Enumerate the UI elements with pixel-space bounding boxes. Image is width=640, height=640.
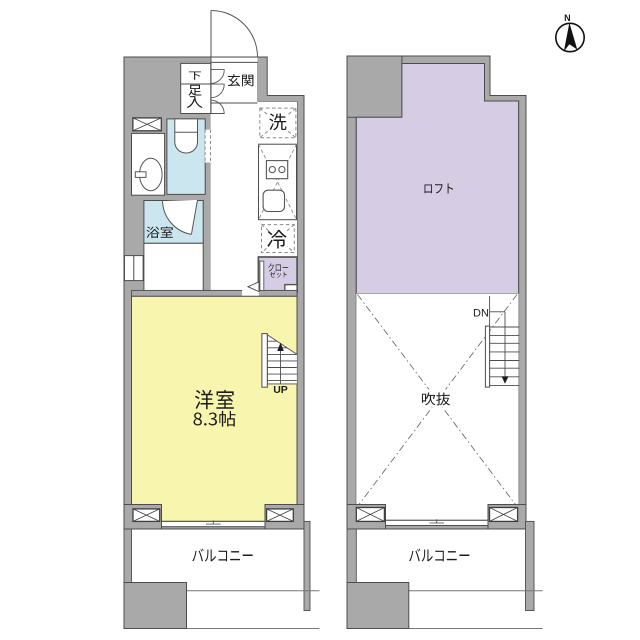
svg-text:DN: DN [473, 307, 489, 319]
svg-text:N: N [564, 13, 571, 23]
svg-text:UP: UP [273, 384, 288, 396]
